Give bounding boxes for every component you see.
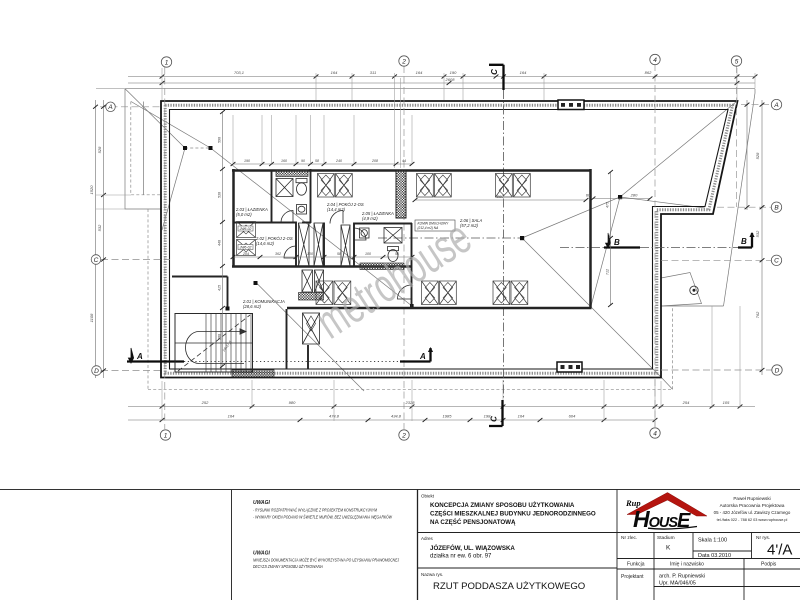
- svg-text:D: D: [94, 368, 99, 375]
- svg-text:NA CZĘŚĆ PENSJONATOWĄ: NA CZĘŚĆ PENSJONATOWĄ: [430, 518, 516, 526]
- svg-text:2328: 2328: [405, 400, 416, 405]
- svg-text:A: A: [419, 352, 426, 361]
- svg-text:1: 1: [165, 59, 169, 66]
- svg-text:528: 528: [97, 146, 102, 153]
- svg-text:K: K: [666, 545, 671, 552]
- svg-text:Skala 1:100: Skala 1:100: [698, 538, 727, 544]
- svg-text:240: 240: [335, 159, 342, 163]
- svg-text:C: C: [774, 258, 779, 265]
- svg-text:164: 164: [416, 70, 423, 75]
- svg-text:434,8: 434,8: [391, 414, 402, 419]
- svg-text:164: 164: [331, 70, 338, 75]
- svg-text:Autorska Pracownia Projektowa: Autorska Pracownia Projektowa: [720, 503, 785, 508]
- svg-text:Rup: Rup: [625, 498, 641, 508]
- svg-text:(14,6 m2): (14,6 m2): [256, 241, 275, 246]
- svg-text:Projektant: Projektant: [621, 574, 644, 580]
- svg-text:Podpis: Podpis: [761, 562, 777, 568]
- svg-text:C: C: [490, 416, 499, 422]
- svg-text:58: 58: [315, 159, 319, 163]
- svg-text:164: 164: [228, 414, 235, 419]
- svg-text:100: 100: [365, 252, 371, 256]
- svg-text:254: 254: [682, 400, 690, 405]
- svg-text:tel./faks 022 - 788 62 03 w: tel./faks 022 - 788 62 03 www.ruphouse.p…: [717, 518, 788, 522]
- svg-text:- WYMIARY OKIEN PODANO W ŚWIE: - WYMIARY OKIEN PODANO W ŚWIETLE MURÓW, …: [253, 515, 393, 520]
- svg-text:604: 604: [569, 414, 576, 419]
- svg-text:862: 862: [645, 70, 652, 75]
- svg-text:58: 58: [337, 252, 341, 256]
- svg-text:DECYZJI ZMIANY SPOSOBU UŻYTKOW: DECYZJI ZMIANY SPOSOBU UŻYTKOWANIA: [253, 564, 323, 569]
- svg-text:NINIEJSZA DOKUMENTACJA MOŻE BY: NINIEJSZA DOKUMENTACJA MOŻE BYĆ WYKORZYS…: [253, 558, 400, 563]
- svg-text:Data 03.2010: Data 03.2010: [698, 553, 731, 559]
- svg-text:712: 712: [605, 269, 609, 275]
- svg-text:JW6-02: JW6-02: [239, 227, 252, 231]
- svg-text:Imię i nazwisko: Imię i nazwisko: [670, 562, 704, 568]
- svg-text:1520: 1520: [89, 185, 94, 195]
- svg-text:Paweł Rupniewski: Paweł Rupniewski: [733, 496, 770, 501]
- svg-text:2: 2: [401, 58, 406, 65]
- svg-text:4'/A: 4'/A: [767, 542, 792, 559]
- svg-text:60: 60: [586, 192, 591, 197]
- svg-text:1985: 1985: [443, 414, 453, 419]
- svg-text:4: 4: [653, 430, 657, 437]
- svg-text:RZUT PODDASZA UŻYTKOWEGO: RZUT PODDASZA UŻYTKOWEGO: [433, 581, 585, 592]
- svg-text:164: 164: [520, 70, 527, 75]
- svg-text:(4,9 m2): (4,9 m2): [362, 216, 378, 221]
- svg-text:A: A: [773, 102, 778, 109]
- svg-text:JÓZEFÓW, UL. WIĄZOWSKA: JÓZEFÓW, UL. WIĄZOWSKA: [430, 544, 515, 552]
- svg-text:(5,0 m2): (5,0 m2): [236, 212, 252, 217]
- svg-text:190: 190: [244, 159, 250, 163]
- svg-text:160: 160: [281, 159, 287, 163]
- svg-text:arch. P. Rupniewski: arch. P. Rupniewski: [659, 574, 705, 580]
- svg-text:B: B: [614, 238, 620, 247]
- svg-text:C: C: [490, 69, 499, 75]
- svg-text:D: D: [775, 367, 780, 374]
- svg-text:528: 528: [755, 152, 760, 159]
- svg-text:2608: 2608: [445, 77, 456, 82]
- svg-text:KONCEPCJA ZMIANY SPOSOBU UŻYTK: KONCEPCJA ZMIANY SPOSOBU UŻYTKOWANIA: [430, 502, 575, 509]
- svg-text:UWAGI: UWAGI: [253, 500, 271, 506]
- svg-text:B: B: [741, 237, 747, 246]
- svg-text:204: 204: [242, 252, 249, 256]
- svg-text:100: 100: [307, 252, 313, 256]
- svg-text:90: 90: [301, 159, 305, 163]
- svg-text:415: 415: [217, 285, 221, 291]
- svg-text:UWAGI: UWAGI: [253, 551, 271, 557]
- svg-text:Funkcja: Funkcja: [627, 562, 645, 568]
- svg-text:(14,4 m2): (14,4 m2): [327, 207, 346, 212]
- svg-text:475: 475: [605, 202, 609, 208]
- svg-text:5: 5: [735, 58, 739, 65]
- svg-text:208: 208: [371, 159, 378, 163]
- svg-text:1108: 1108: [89, 313, 94, 322]
- svg-text:1: 1: [164, 432, 168, 439]
- svg-text:Nr rys.: Nr rys.: [756, 535, 770, 541]
- svg-text:Stadium: Stadium: [657, 535, 675, 541]
- svg-text:105: 105: [723, 400, 730, 405]
- svg-text:440: 440: [217, 240, 221, 246]
- svg-text:A: A: [107, 104, 112, 111]
- svg-text:(28,6 m2): (28,6 m2): [243, 304, 262, 309]
- svg-text:703,1: 703,1: [234, 70, 244, 75]
- svg-text:- RYSUNKI ROZPATRYWAĆ WYŁĄCZN: - RYSUNKI ROZPATRYWAĆ WYŁĄCZNIE Z PROJEK…: [253, 508, 377, 513]
- svg-text:JW6-02: JW6-02: [239, 246, 252, 250]
- svg-text:B: B: [774, 205, 779, 212]
- svg-text:Adres: Adres: [421, 536, 434, 541]
- svg-text:362: 362: [275, 252, 281, 256]
- svg-text:762: 762: [755, 311, 760, 318]
- svg-text:860: 860: [497, 194, 504, 199]
- svg-text:Nazwa rys.: Nazwa rys.: [421, 572, 443, 577]
- svg-text:A: A: [136, 352, 143, 361]
- svg-text:474,8: 474,8: [329, 414, 340, 419]
- svg-text:190: 190: [450, 70, 457, 75]
- svg-text:Nr zlec.: Nr zlec.: [621, 535, 637, 541]
- svg-text:4: 4: [653, 57, 657, 64]
- svg-text:działka nr ew. 6 obr. 97: działka nr ew. 6 obr. 97: [430, 554, 492, 560]
- svg-text:530: 530: [217, 192, 221, 198]
- svg-text:Obiekt: Obiekt: [421, 494, 435, 499]
- svg-text:311: 311: [370, 70, 376, 75]
- svg-text:(57,2 m2): (57,2 m2): [460, 223, 479, 228]
- svg-text:2: 2: [401, 432, 406, 439]
- svg-text:44: 44: [402, 159, 406, 163]
- svg-text:280: 280: [630, 192, 638, 197]
- svg-text:590: 590: [217, 137, 221, 143]
- svg-text:164: 164: [518, 414, 525, 419]
- svg-text:580: 580: [217, 334, 221, 340]
- svg-text:Upr. MA/046/05: Upr. MA/046/05: [659, 581, 696, 587]
- svg-text:C: C: [94, 257, 99, 264]
- svg-text:532: 532: [755, 230, 760, 237]
- svg-text:980: 980: [289, 400, 296, 405]
- svg-text:CZĘŚCI MIESZKALNEJ BUDYNKU JED: CZĘŚCI MIESZKALNEJ BUDYNKU JEDNORODZINNE…: [430, 511, 596, 518]
- svg-text:252: 252: [201, 400, 209, 405]
- svg-text:532: 532: [97, 224, 102, 231]
- svg-text:05 - 420 Józefów ul. Zawiszy C: 05 - 420 Józefów ul. Zawiszy Czarnego: [714, 510, 791, 515]
